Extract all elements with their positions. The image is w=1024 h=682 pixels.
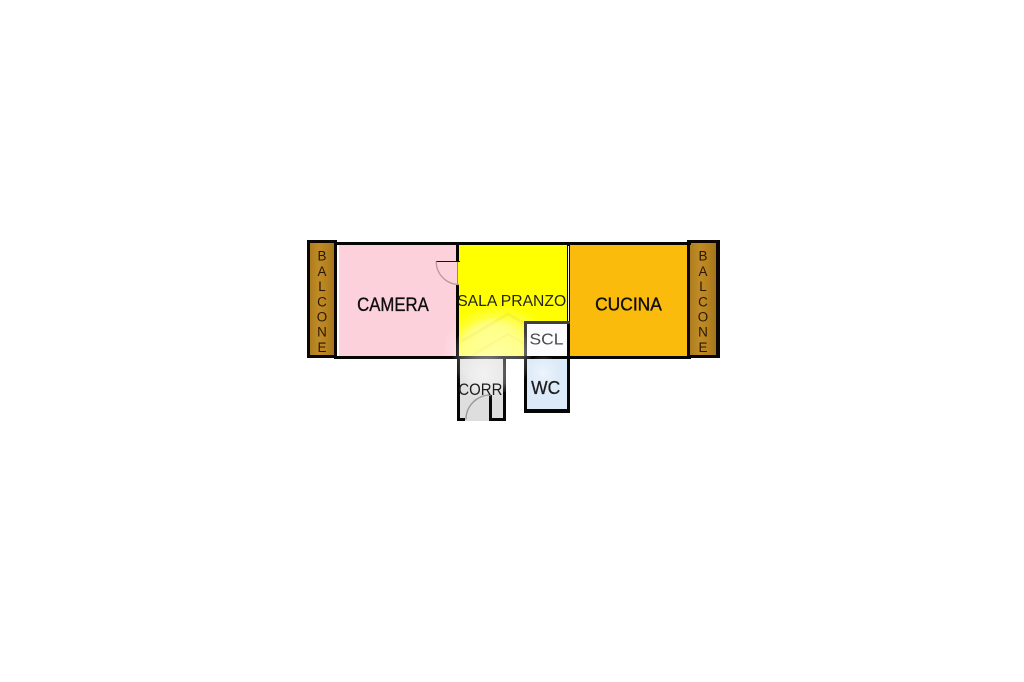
svg-text:A: A	[318, 264, 327, 279]
svg-text:WC: WC	[531, 377, 560, 398]
svg-text:CAMERA: CAMERA	[357, 295, 429, 316]
svg-text:SCL: SCL	[530, 332, 564, 349]
svg-text:B: B	[699, 249, 708, 264]
svg-text:O: O	[317, 310, 327, 325]
svg-text:CORR: CORR	[458, 380, 502, 399]
svg-text:SALA PRANZO: SALA PRANZO	[457, 293, 566, 310]
svg-text:N: N	[698, 325, 708, 340]
svg-text:E: E	[699, 340, 708, 355]
svg-text:N: N	[317, 325, 327, 340]
svg-text:A: A	[699, 264, 708, 279]
svg-text:CUCINA: CUCINA	[595, 295, 662, 315]
svg-text:C: C	[698, 294, 708, 309]
svg-text:B: B	[318, 249, 327, 264]
svg-text:L: L	[318, 279, 325, 294]
svg-text:C: C	[317, 294, 327, 309]
svg-text:L: L	[699, 279, 706, 294]
svg-text:E: E	[318, 340, 327, 355]
svg-text:O: O	[698, 310, 708, 325]
